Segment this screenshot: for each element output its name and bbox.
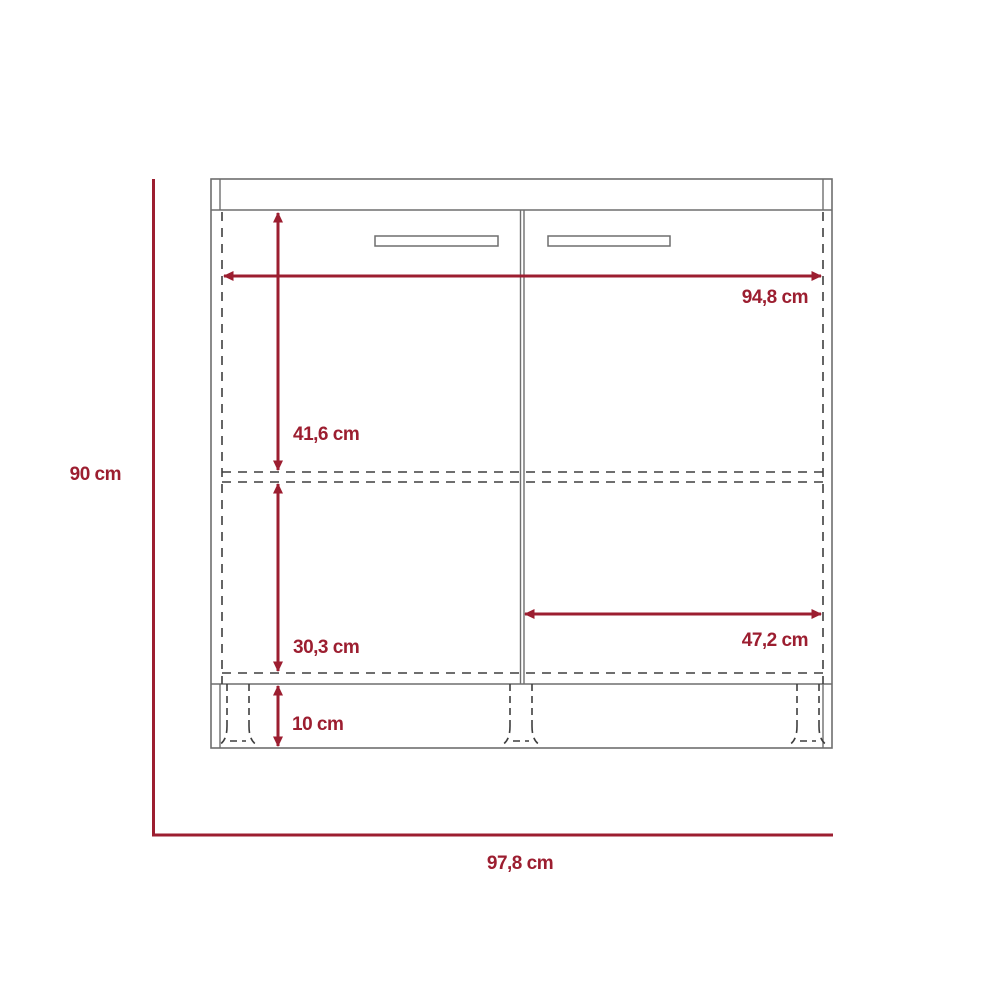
cabinet-outer-rect (211, 179, 832, 748)
dimension-diagram: 90 cm 97,8 cm 94,8 cm 41,6 cm 30,3 cm 10… (0, 0, 1000, 1000)
interior-width-label: 94,8 cm (742, 287, 808, 308)
overall-height-label: 90 cm (70, 464, 121, 485)
dimension-labels-group: 90 cm 97,8 cm 94,8 cm 41,6 cm 30,3 cm 10… (70, 287, 808, 874)
hidden-lines-group (217, 212, 829, 746)
door-width-label: 47,2 cm (742, 630, 808, 651)
plinth-height-label: 10 cm (292, 714, 343, 735)
cabinet-outline-group (211, 179, 832, 748)
overall-width-label: 97,8 cm (487, 853, 553, 874)
right-door-handle (548, 236, 670, 246)
dimension-lines-group (152, 179, 833, 836)
center-foot-dashed (500, 684, 542, 746)
left-foot-dashed (217, 684, 259, 746)
upper-section-label: 41,6 cm (293, 424, 359, 445)
left-door-handle (375, 236, 498, 246)
diagram-svg: 90 cm 97,8 cm 94,8 cm 41,6 cm 30,3 cm 10… (0, 0, 1000, 1000)
lower-section-label: 30,3 cm (293, 637, 359, 658)
